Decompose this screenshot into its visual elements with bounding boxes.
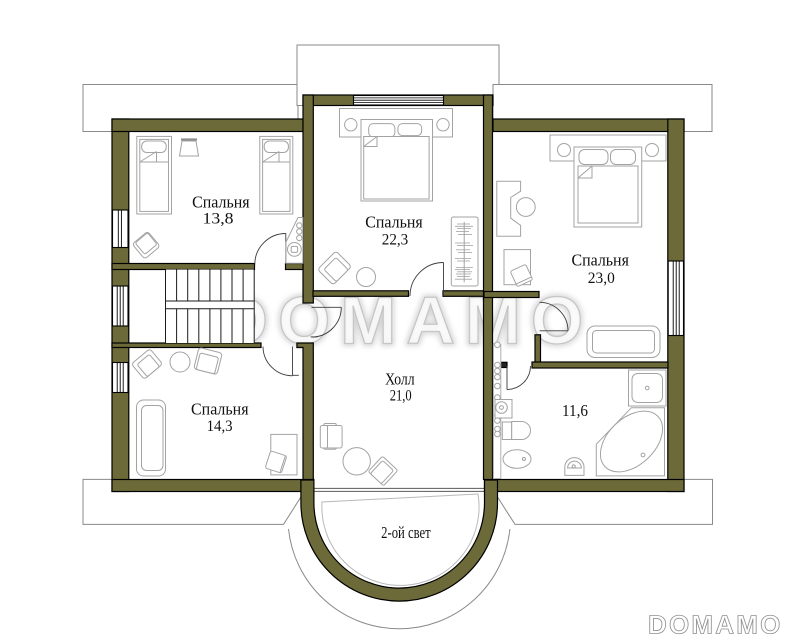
svg-text:21,0: 21,0 xyxy=(390,387,412,404)
svg-text:DOMAMO: DOMAMO xyxy=(648,610,783,640)
svg-text:Спальня: Спальня xyxy=(191,400,249,419)
svg-text:Спальня: Спальня xyxy=(192,192,250,211)
svg-text:2-ой свет: 2-ой свет xyxy=(381,523,431,542)
svg-text:23,0: 23,0 xyxy=(588,270,615,287)
svg-text:13,8: 13,8 xyxy=(203,211,234,228)
svg-text:Холл: Холл xyxy=(385,370,415,389)
svg-text:11,6: 11,6 xyxy=(562,401,588,420)
svg-text:Спальня: Спальня xyxy=(365,213,423,232)
svg-text:14,3: 14,3 xyxy=(207,418,233,435)
svg-text:22,3: 22,3 xyxy=(382,232,409,249)
svg-text:Спальня: Спальня xyxy=(571,250,629,269)
